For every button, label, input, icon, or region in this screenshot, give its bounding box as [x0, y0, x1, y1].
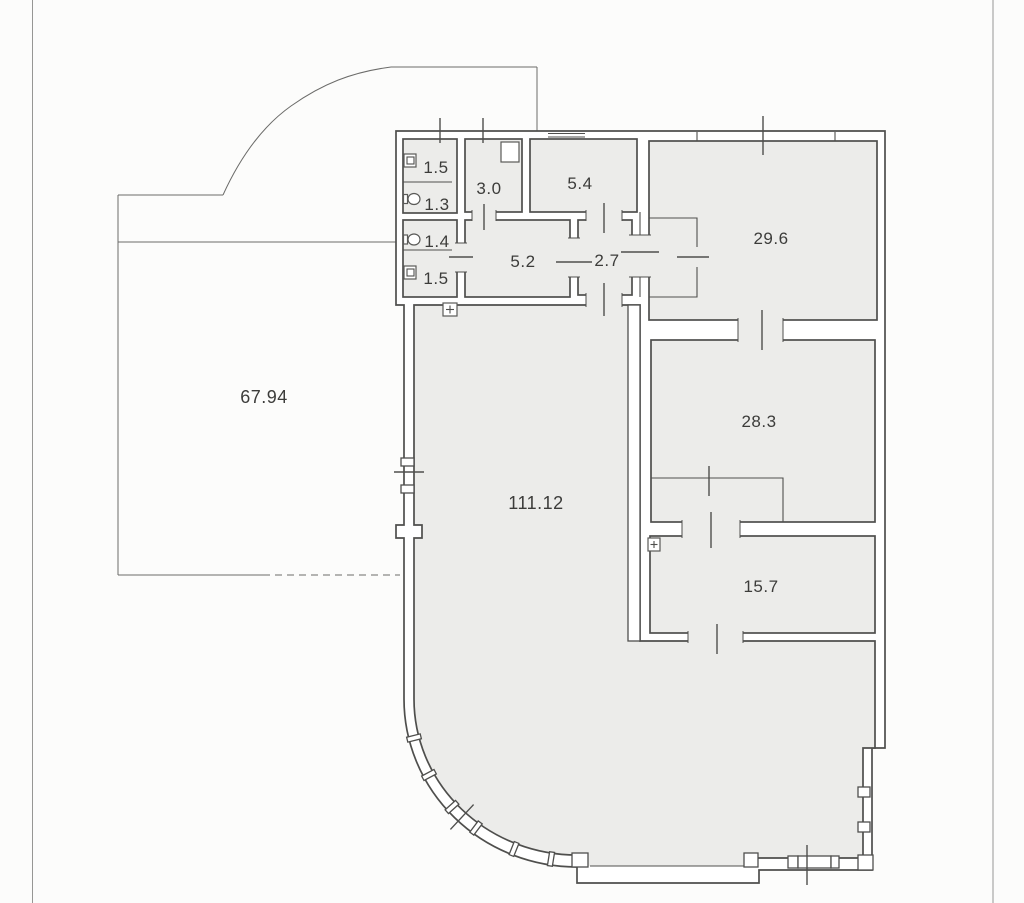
mullion — [858, 822, 870, 832]
toilet-icon — [404, 194, 421, 205]
area-label-3-0: 3.0 — [476, 179, 501, 198]
door-frame — [788, 856, 798, 868]
corridor-wall — [628, 305, 640, 641]
area-label-28-3: 28.3 — [741, 412, 776, 431]
shaft-icon — [501, 142, 519, 162]
door-leaf — [798, 856, 831, 868]
area-label-main-hall: 111.12 — [508, 493, 563, 513]
mullion — [401, 485, 414, 493]
wall-post — [858, 855, 873, 870]
area-label-wc-1-4: 1.4 — [424, 232, 449, 251]
toilet-icon — [404, 234, 421, 245]
electric-panel-icon — [648, 538, 660, 551]
door-frame — [831, 856, 839, 868]
area-label-wc-1-3: 1.3 — [424, 195, 449, 214]
area-label-2-7: 2.7 — [594, 251, 619, 270]
terrace-curve — [223, 67, 391, 195]
area-label-29-6: 29.6 — [753, 229, 788, 248]
area-label-wc-bottom: 1.5 — [423, 269, 448, 288]
electric-panel-icon — [443, 303, 457, 316]
area-label-wc-top: 1.5 — [423, 158, 448, 177]
wall-post — [744, 853, 758, 867]
floor-plan-drawing: 1.5 1.3 1.4 1.5 3.0 5.4 5.2 2.7 29.6 28.… — [0, 0, 1024, 903]
area-label-5-4: 5.4 — [567, 174, 592, 193]
mullion — [858, 787, 870, 797]
area-label-15-7: 15.7 — [743, 577, 778, 596]
area-label-terrace: 67.94 — [240, 387, 288, 407]
area-label-5-2: 5.2 — [510, 252, 535, 271]
washbasin-icon — [404, 266, 416, 279]
wall-post — [572, 853, 588, 867]
floor-plan-page: 1.5 1.3 1.4 1.5 3.0 5.4 5.2 2.7 29.6 28.… — [0, 0, 1024, 903]
room-28-3 — [651, 340, 875, 522]
washbasin-icon — [404, 154, 416, 167]
mullion — [401, 458, 414, 466]
